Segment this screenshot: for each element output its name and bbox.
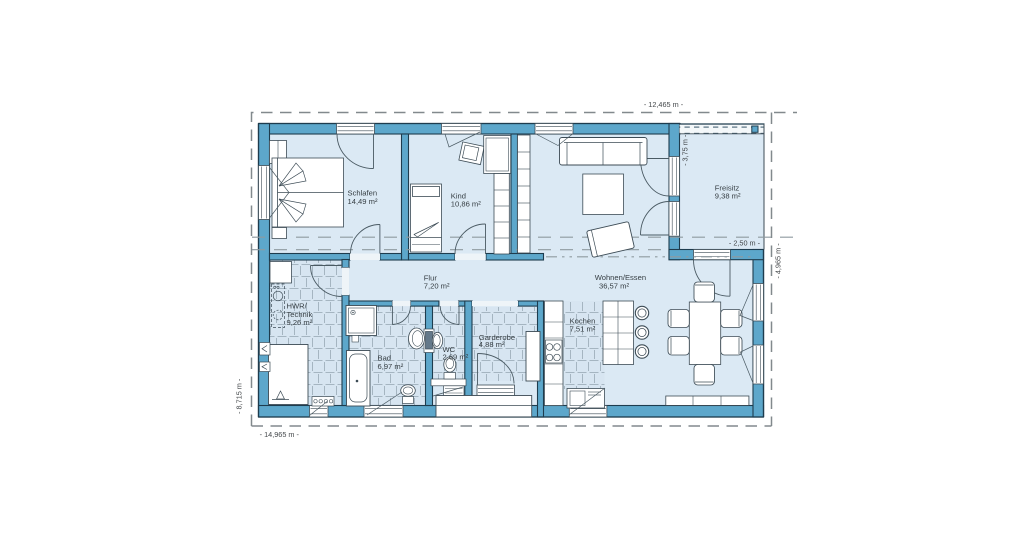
svg-text:7,51 m²: 7,51 m² bbox=[570, 325, 596, 334]
svg-text:4,88 m²: 4,88 m² bbox=[479, 340, 505, 349]
svg-text:10,86 m²: 10,86 m² bbox=[451, 200, 481, 209]
svg-text:- 12,465 m -: - 12,465 m - bbox=[644, 100, 684, 109]
svg-text:- 8,715 m -: - 8,715 m - bbox=[235, 378, 244, 414]
svg-text:9,26 m²: 9,26 m² bbox=[287, 318, 313, 327]
svg-text:- 4,965 m -: - 4,965 m - bbox=[774, 243, 783, 279]
svg-text:36,57 m²: 36,57 m² bbox=[599, 281, 629, 290]
svg-text:- 2,50 m -: - 2,50 m - bbox=[729, 239, 761, 248]
svg-text:6,97 m²: 6,97 m² bbox=[378, 362, 404, 371]
svg-text:14,49 m²: 14,49 m² bbox=[348, 197, 378, 206]
svg-text:9,38 m²: 9,38 m² bbox=[715, 191, 741, 200]
svg-text:- 3,75 m -: - 3,75 m - bbox=[681, 134, 690, 166]
svg-text:- 14,965 m -: - 14,965 m - bbox=[260, 430, 300, 439]
svg-text:7,20 m²: 7,20 m² bbox=[424, 282, 450, 291]
svg-text:2,69 m²: 2,69 m² bbox=[443, 352, 469, 361]
